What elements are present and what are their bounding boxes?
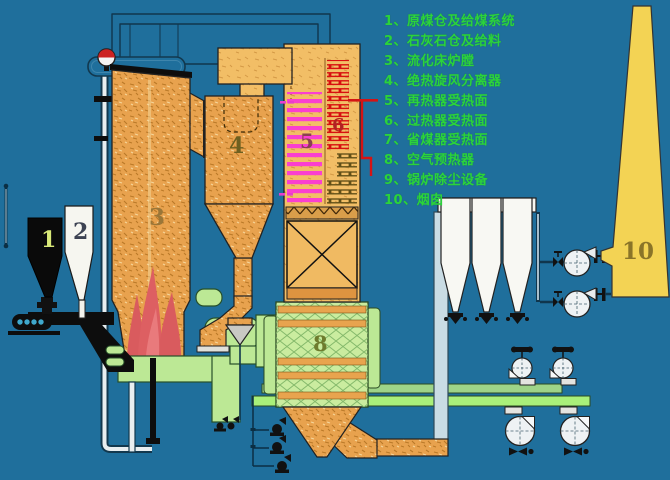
legend-item-8: 8、空气预热器 (384, 151, 515, 171)
legend-item-10: 10、烟囱 (384, 191, 515, 211)
component-label-2: 2 (73, 221, 88, 243)
component-label-1: 1 (41, 229, 56, 251)
baghouse-dust-collector (438, 198, 536, 324)
legend-item-6: 6、过热器受热面 (384, 112, 515, 132)
legend: 1、原煤仓及给煤系统 2、石灰石仓及给料 3、流化床炉膛 4、绝热旋风分离器 5… (384, 12, 515, 211)
backpass (284, 44, 360, 302)
component-label-8: 8 (313, 333, 328, 354)
legend-item-2: 2、石灰石仓及给料 (384, 32, 515, 52)
economizer-coil (337, 152, 357, 178)
legend-item-1: 1、原煤仓及给煤系统 (384, 12, 515, 32)
hopper-discharge-valves (444, 313, 529, 324)
component-label-5: 5 (300, 131, 314, 151)
superheater-coil (327, 60, 349, 152)
diagram-canvas (0, 0, 670, 480)
legend-item-9: 9、锅炉除尘设备 (384, 171, 515, 191)
legend-item-7: 7、省煤器受热面 (384, 131, 515, 151)
legend-item-4: 4、绝热旋风分离器 (384, 72, 515, 92)
legend-item-3: 3、流化床炉膛 (384, 52, 515, 72)
component-label-6: 6 (332, 117, 345, 135)
cfb-boiler-diagram: 1、原煤仓及给煤系统 2、石灰石仓及给料 3、流化床炉膛 4、绝热旋风分离器 5… (0, 0, 670, 480)
legend-item-5: 5、再热器受热面 (384, 92, 515, 112)
component-label-10: 10 (622, 240, 654, 263)
component-label-4: 4 (229, 135, 244, 157)
component-label-3: 3 (149, 206, 165, 229)
